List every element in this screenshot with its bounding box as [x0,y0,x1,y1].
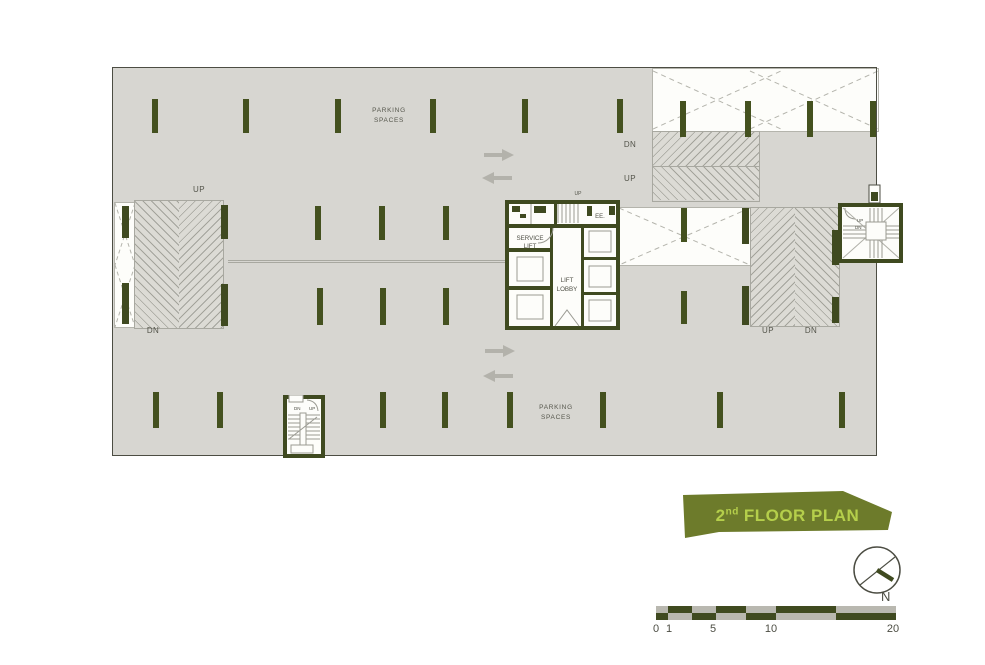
scale-bar-row-bottom [656,613,896,620]
floor-number: 2 [716,506,726,525]
parking-divider-tick [443,288,449,325]
ramp-chevron-right-half [179,201,223,328]
north-label: N [881,589,890,604]
scale-tick-1: 1 [661,623,677,635]
parking-divider-tick [153,392,159,428]
parking-divider-tick [315,206,321,240]
floor-plan-title-banner: 2ndFLOOR PLAN [683,491,892,538]
parking-divider-tick [217,392,223,428]
parking-label-line2: SPACES [525,413,587,423]
parking-divider-tick [807,101,813,137]
parking-divider-tick [681,291,687,324]
ramp-top-right [652,131,760,202]
floor-plan-title: 2ndFLOOR PLAN [716,504,860,526]
parking-divider-tick [380,288,386,325]
void-area-top-right [652,68,879,132]
floor-plan-text: FLOOR PLAN [744,506,860,525]
ramp-chevron-left-half [751,208,795,326]
scale-tick-10: 10 [763,623,779,635]
lift-lobby-label-line2: LOBBY [557,286,578,293]
stair-dn-label: DN [855,225,862,230]
service-lift-label-line1: SERVICE [516,235,543,242]
drive-arrow-right [485,345,515,357]
parking-label-line2: SPACES [358,116,420,126]
ramp-lower-flight [653,167,759,200]
parking-divider-tick [379,206,385,240]
core-stair-up-label: UP [570,191,586,197]
parking-divider-tick [442,392,448,428]
aisle-divider-line [228,260,509,263]
ramp-up-label: UP [615,174,645,183]
parking-divider-tick [152,99,158,133]
compass-needle-wedge [877,570,893,580]
dashed-x-marks [653,69,878,131]
ramp-upper-flight [653,132,759,167]
parking-divider-tick [522,99,528,133]
parking-divider-tick [380,392,386,428]
drive-arrow-left [483,370,513,382]
ramp-left [134,200,224,329]
parking-divider-tick [443,206,449,240]
floor-plan-sheet: DN UP UP DN [0,0,985,665]
stair-dn-label: DN [294,406,301,411]
parking-divider-tick [617,99,623,133]
ramp-dn-label: DN [615,140,645,149]
parking-divider-tick [335,99,341,133]
floor-ordinal: nd [726,506,739,517]
parking-divider-tick [717,392,723,428]
floor-plan-drawing: DN UP UP DN [112,67,877,456]
right-ramp-dn-label: DN [798,326,824,335]
parking-divider-tick [745,101,751,137]
parking-divider-tick [839,392,845,428]
left-ramp-up-label: UP [184,185,214,194]
right-ramp-up-label: UP [755,326,781,335]
drive-arrow-left [482,172,512,184]
parking-label-line1: PARKING [358,106,420,116]
parking-divider-tick [507,392,513,428]
parking-divider-tick [681,208,687,242]
ramp-right [750,207,840,327]
parking-divider-tick [680,101,686,137]
ramp-chevron-left-half [135,201,179,328]
north-compass: N [845,544,909,608]
service-lift-label-line2: LIFT [524,243,537,250]
stair-up-label: UP [309,406,315,411]
parking-divider-tick [430,99,436,133]
scale-tick-5: 5 [705,623,721,635]
stair-bottom: DN UP [283,395,325,458]
parking-spaces-label-top: PARKING SPACES [358,106,420,127]
lift-lobby-label-line1: LIFT [561,277,574,284]
parking-divider-tick [600,392,606,428]
parking-label-line1: PARKING [525,403,587,413]
scale-tick-20: 20 [885,623,901,635]
left-ramp-dn-label: DN [138,326,168,335]
parking-spaces-label-bottom: PARKING SPACES [525,403,587,424]
parking-divider-tick [870,101,876,137]
ee-room-label: EE. [595,214,605,220]
drive-arrow-right [484,149,514,161]
scale-bar-row-top [656,606,896,613]
parking-divider-tick [317,288,323,325]
scale-bar [656,606,896,620]
stair-right: UP DN [838,184,904,264]
parking-divider-tick [243,99,249,133]
stair-up-label: UP [857,218,863,223]
lift-core: EE. SERVICE LIFT LIFT LOBBY [505,200,620,330]
